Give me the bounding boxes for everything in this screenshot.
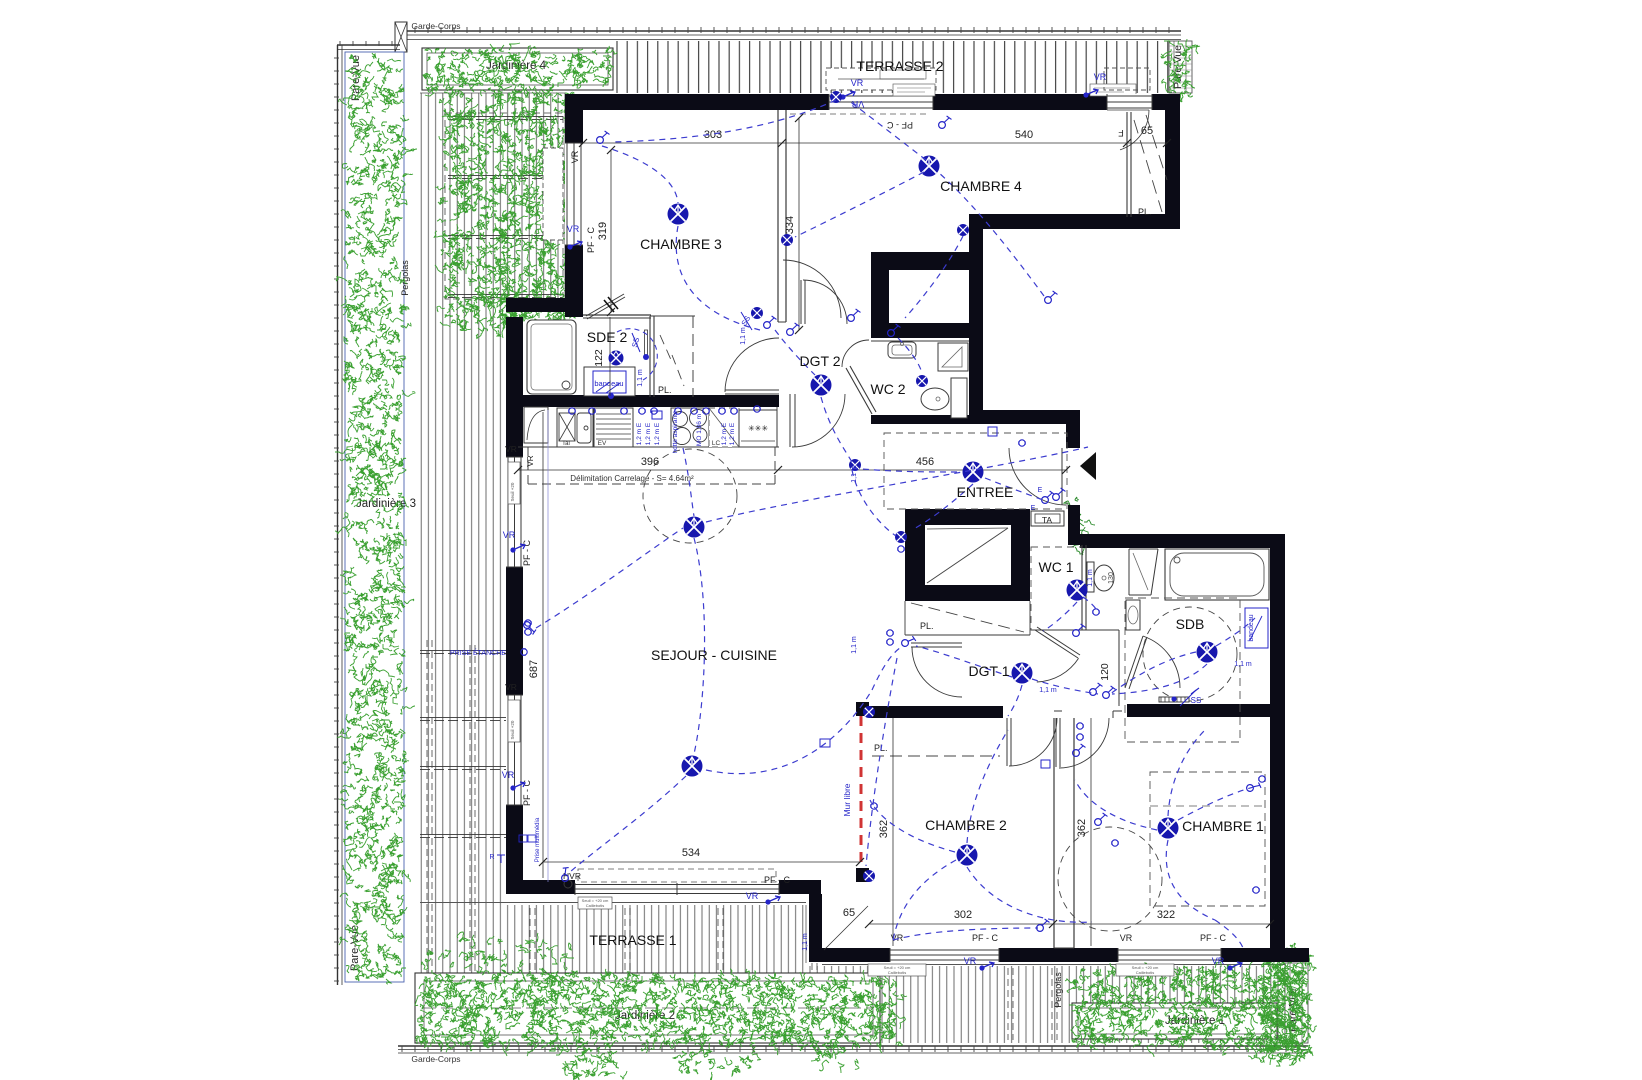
- svg-text:VR: VR: [1212, 956, 1225, 966]
- svg-text:1,1 m: 1,1 m: [802, 933, 809, 951]
- svg-text:VR: VR: [502, 770, 515, 780]
- svg-text:1,1 m: 1,1 m: [1234, 661, 1252, 668]
- svg-text:1,1 m: 1,1 m: [740, 327, 747, 345]
- svg-text:TERRASSE 2: TERRASSE 2: [856, 58, 943, 74]
- svg-text:362: 362: [1076, 819, 1088, 837]
- svg-text:F: F: [1118, 128, 1124, 138]
- svg-text:PF - C: PF - C: [1200, 933, 1226, 943]
- svg-text:65: 65: [1141, 125, 1153, 137]
- svg-text:Seuil +20: Seuil +20: [510, 720, 515, 739]
- svg-text:1,1 m: 1,1 m: [637, 369, 644, 387]
- svg-text:Seuil +20: Seuil +20: [510, 482, 515, 501]
- svg-text:VR: VR: [570, 150, 580, 163]
- svg-text:VR: VR: [505, 444, 517, 454]
- svg-text:Pergolas: Pergolas: [400, 260, 410, 296]
- svg-text:PF - C: PF - C: [522, 540, 532, 566]
- svg-text:VR: VR: [1120, 933, 1133, 943]
- svg-text:VR: VR: [851, 78, 864, 88]
- svg-text:PRISE ÉTANCHE: PRISE ÉTANCHE: [450, 648, 506, 657]
- svg-text:1,2 m E: 1,2 m E: [636, 422, 643, 445]
- svg-text:322: 322: [1157, 909, 1175, 921]
- svg-text:65: 65: [843, 907, 855, 919]
- svg-text:SEJOUR - CUISINE: SEJOUR - CUISINE: [651, 647, 777, 663]
- svg-text:SDE 2: SDE 2: [587, 329, 628, 345]
- svg-text:1,1 m: 1,1 m: [1087, 569, 1094, 587]
- svg-text:130: 130: [1108, 572, 1115, 584]
- svg-text:Garde-Corps: Garde-Corps: [411, 21, 460, 31]
- svg-text:WC 1: WC 1: [1039, 559, 1074, 575]
- svg-text:120: 120: [1099, 663, 1111, 681]
- svg-text:LC: LC: [712, 440, 721, 447]
- svg-text:Délimitation Carrelage - S= 4.: Délimitation Carrelage - S= 4.64m²: [570, 474, 694, 483]
- svg-text:1,2 m E: 1,2 m E: [645, 422, 652, 445]
- svg-text:1,2 m E: 1,2 m E: [654, 422, 661, 445]
- svg-text:1,2 m E: 1,2 m E: [721, 422, 728, 445]
- svg-text:534: 534: [682, 847, 700, 859]
- svg-text:Caillebotis: Caillebotis: [1136, 970, 1154, 975]
- svg-text:R: R: [489, 854, 494, 861]
- svg-text:Mur libre: Mur libre: [842, 783, 852, 816]
- svg-text:E: E: [1031, 505, 1036, 512]
- svg-text:Tal: Tal: [562, 441, 570, 447]
- svg-text:DGT 2: DGT 2: [800, 353, 841, 369]
- svg-text:MO 1,86 m: MO 1,86 m: [696, 414, 703, 446]
- svg-text:VR: VR: [526, 455, 535, 466]
- svg-text:DGT 1: DGT 1: [969, 663, 1010, 679]
- svg-text:540: 540: [1015, 129, 1033, 141]
- svg-text:✳✳✳: ✳✳✳: [748, 424, 768, 433]
- svg-text:1,2 m E: 1,2 m E: [729, 422, 736, 445]
- svg-text:396: 396: [641, 456, 659, 468]
- svg-text:Caillebotis: Caillebotis: [888, 970, 906, 975]
- svg-text:PL.: PL.: [1138, 207, 1152, 217]
- svg-text:PF - C: PF - C: [887, 120, 913, 130]
- svg-text:1,1 m: 1,1 m: [851, 636, 858, 654]
- svg-text:CHAMBRE 4: CHAMBRE 4: [940, 178, 1022, 194]
- svg-text:319: 319: [597, 222, 609, 240]
- svg-text:Garde-Corps: Garde-Corps: [411, 1054, 460, 1064]
- svg-text:PL.: PL.: [658, 385, 672, 395]
- svg-text:VR: VR: [964, 956, 977, 966]
- svg-text:Caillebotis: Caillebotis: [586, 903, 604, 908]
- svg-text:PF - C: PF - C: [972, 933, 998, 943]
- svg-text:VR: VR: [746, 891, 759, 901]
- svg-text:VR: VR: [505, 682, 517, 692]
- svg-text:EV: EV: [598, 440, 607, 447]
- svg-text:Jardinière 3: Jardinière 3: [356, 498, 416, 510]
- svg-text:PL.: PL.: [920, 621, 934, 631]
- svg-text:CHAMBRE 2: CHAMBRE 2: [925, 817, 1007, 833]
- svg-text:E: E: [1038, 487, 1043, 494]
- svg-text:PF - C: PF - C: [586, 227, 596, 253]
- svg-text:1,1 m: 1,1 m: [1039, 687, 1057, 694]
- svg-text:SS: SS: [1191, 696, 1202, 705]
- svg-text:VR: VR: [1094, 72, 1107, 82]
- svg-text:WC 2: WC 2: [871, 381, 906, 397]
- svg-text:362: 362: [878, 820, 890, 838]
- svg-text:456: 456: [916, 456, 934, 468]
- svg-text:TERRASSE 1: TERRASSE 1: [589, 932, 676, 948]
- svg-text:TA: TA: [1042, 515, 1053, 525]
- svg-text:CHAMBRE 3: CHAMBRE 3: [640, 236, 722, 252]
- svg-text:VR: VR: [503, 530, 516, 540]
- svg-text:Pergolas: Pergolas: [1053, 972, 1063, 1008]
- svg-text:687: 687: [528, 660, 540, 678]
- svg-text:302: 302: [954, 909, 972, 921]
- svg-text:122: 122: [593, 349, 605, 367]
- svg-text:SDB: SDB: [1176, 616, 1205, 632]
- svg-text:334: 334: [784, 216, 796, 234]
- svg-text:VR: VR: [567, 224, 580, 234]
- svg-text:CHAMBRE 1: CHAMBRE 1: [1182, 818, 1264, 834]
- svg-text:PF - C: PF - C: [764, 875, 790, 885]
- svg-text:ENTREE: ENTREE: [957, 484, 1014, 500]
- svg-text:hotte aspirante: hotte aspirante: [672, 410, 679, 453]
